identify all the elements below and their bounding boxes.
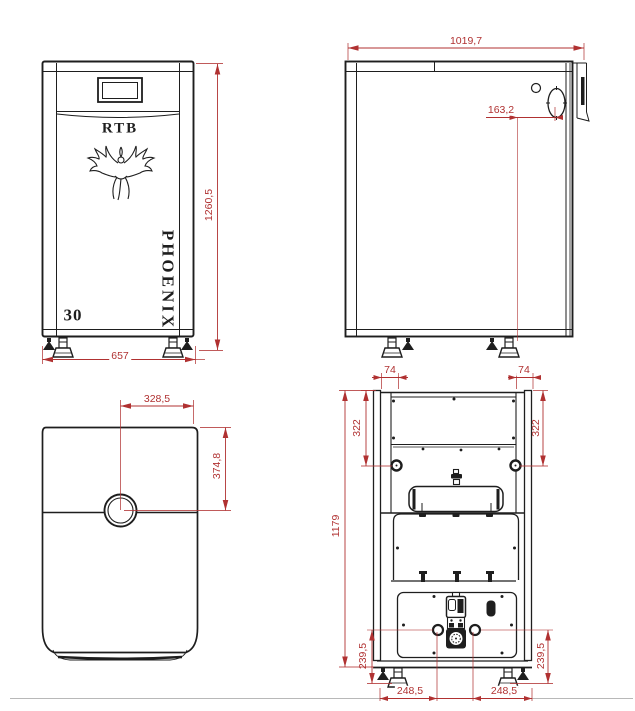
dim-front-width: 657	[109, 351, 131, 362]
back-panel-screws	[392, 398, 515, 452]
dim-back-248-left: 248,5	[395, 686, 425, 697]
side-small-hole	[532, 84, 541, 93]
drawing-canvas: RTB PHOENIX 30 1260,5 657 1019,7 163,2 3…	[0, 0, 635, 711]
drawing-linework	[0, 0, 635, 711]
front-left-foot	[53, 338, 73, 357]
front-right-jack-foot	[181, 338, 193, 350]
side-dimensions	[348, 43, 584, 341]
side-rear-foot	[499, 338, 519, 357]
back-lower-panel	[394, 514, 519, 580]
dim-back-239-right: 239,5	[536, 643, 547, 669]
brand-logo-text: RTB	[102, 122, 138, 137]
side-front-foot	[382, 338, 402, 357]
dim-back-74-left: 74	[382, 365, 398, 376]
dim-top-flue-y: 374,8	[212, 453, 223, 479]
dim-back-height: 1179	[331, 515, 342, 538]
top-view-linework	[43, 428, 198, 661]
back-view-linework	[373, 391, 532, 688]
back-safety-valve	[451, 470, 462, 485]
back-cylinder	[409, 487, 503, 512]
front-right-foot	[163, 338, 183, 357]
dim-side-depth: 1019,7	[448, 36, 484, 47]
dim-back-74-right: 74	[516, 365, 532, 376]
side-rear-jack-foot	[486, 338, 498, 350]
back-ignition-port	[487, 601, 496, 617]
back-auger-motor-assembly	[446, 593, 466, 649]
dim-back-248-right: 248,5	[489, 686, 519, 697]
power-rating-text: 30	[64, 307, 83, 324]
side-front-jack-foot	[402, 338, 414, 350]
dim-back-322-right: 322	[531, 419, 542, 437]
side-view-linework	[346, 62, 590, 358]
top-body-outline	[43, 428, 198, 653]
back-left-jack-foot	[377, 668, 389, 680]
back-left-column	[374, 391, 381, 661]
side-body-outline	[346, 62, 573, 337]
side-rear-flap	[573, 63, 589, 121]
dim-side-flue-offset: 163,2	[486, 105, 516, 116]
front-door-top-edge	[57, 114, 179, 118]
back-right-jack-foot	[517, 668, 529, 680]
phoenix-logo	[88, 146, 154, 200]
model-name-text: PHOENIX	[160, 230, 177, 330]
dim-back-239-left: 239,5	[358, 643, 369, 669]
dim-top-flue-x: 328,5	[142, 394, 172, 405]
front-left-jack-foot	[43, 338, 55, 350]
dim-front-height: 1260,5	[204, 189, 215, 221]
dim-back-322-left: 322	[352, 419, 363, 437]
side-flue-oval	[546, 86, 567, 120]
